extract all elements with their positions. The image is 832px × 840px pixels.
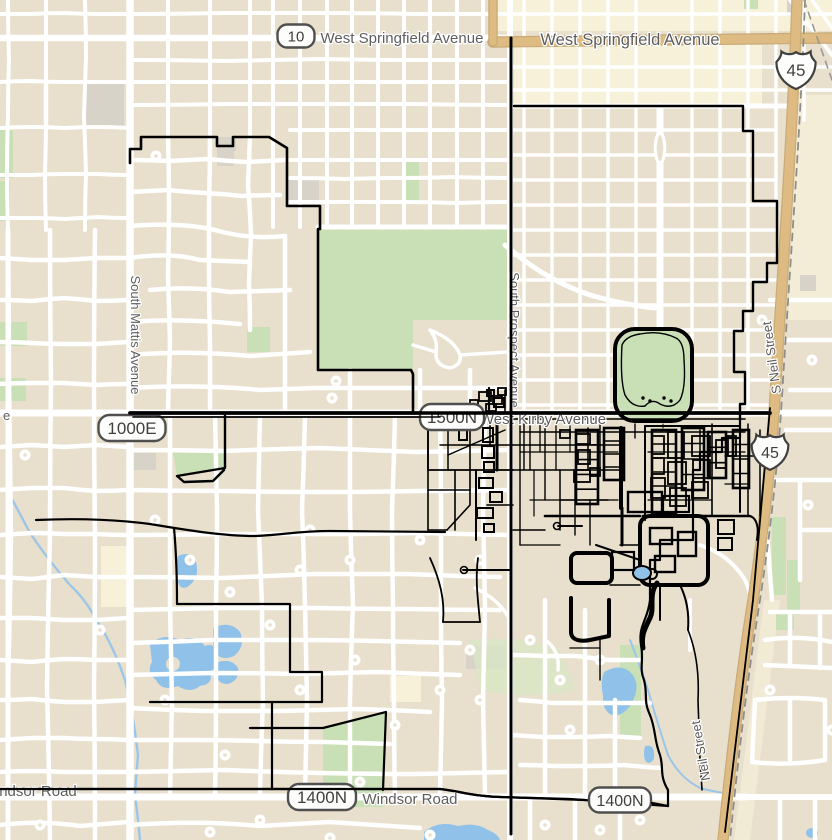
svg-text:1000E: 1000E <box>107 419 156 438</box>
svg-text:1400N: 1400N <box>297 788 347 807</box>
svg-text:ndsor Road: ndsor Road <box>0 783 77 800</box>
svg-text:West Springfield Avenue: West Springfield Avenue <box>540 31 719 49</box>
svg-text:1400N: 1400N <box>596 793 643 810</box>
svg-text:45: 45 <box>761 445 779 462</box>
svg-text:45: 45 <box>787 61 806 80</box>
svg-text:10: 10 <box>288 28 305 45</box>
svg-text:South Mattis Avenue: South Mattis Avenue <box>128 275 143 394</box>
svg-text:West Springfield Avenue: West Springfield Avenue <box>321 30 484 47</box>
svg-text:e: e <box>3 408 10 423</box>
svg-text:Windsor Road: Windsor Road <box>362 791 457 808</box>
svg-text:South Prospect Avenue: South Prospect Avenue <box>507 272 522 408</box>
